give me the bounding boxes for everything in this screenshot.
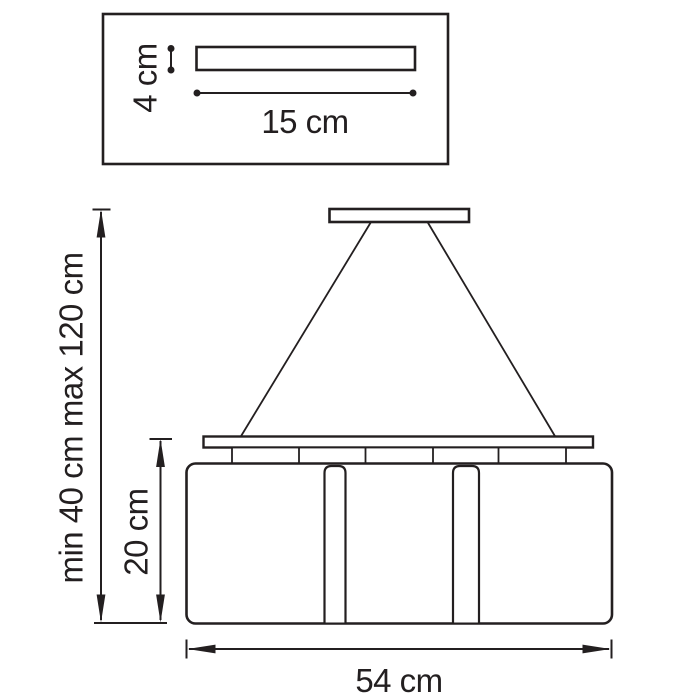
arrow-down — [97, 595, 106, 623]
suspension-height-label: min 40 cm max 120 cm — [53, 252, 90, 583]
mounting-bar — [204, 437, 594, 448]
inner-shade-gap-right — [453, 466, 479, 623]
dim-dot — [194, 90, 201, 97]
dim-dot — [168, 67, 175, 74]
shade-row — [187, 464, 613, 624]
ceiling-plate — [330, 209, 470, 222]
detail-box: 4 cm 15 cm — [103, 14, 448, 164]
inner-shade-gap-left — [325, 466, 346, 623]
shade-height-label: 20 cm — [118, 488, 155, 575]
arrow-up — [156, 439, 165, 467]
dim-dot — [168, 45, 175, 52]
pendant-front-view — [187, 209, 613, 624]
suspension-wire-left — [241, 222, 372, 437]
lamp-holders — [232, 448, 566, 464]
arrow-down — [156, 595, 165, 623]
dim-dot — [410, 90, 417, 97]
holder-row — [232, 448, 566, 464]
suspension-wire-right — [428, 222, 556, 437]
canopy-height-label: 4 cm — [127, 43, 164, 113]
dim-shade-height: 20 cm — [118, 439, 173, 623]
arrow-right — [583, 645, 611, 654]
total-width-label: 54 cm — [355, 662, 442, 699]
canopy-width-label: 15 cm — [261, 103, 348, 140]
arrow-left — [188, 645, 216, 654]
arrow-up — [97, 210, 106, 238]
drawing-canvas: 4 cm 15 cm min — [0, 0, 700, 700]
dim-total-width: 54 cm — [187, 640, 612, 700]
canopy-bar-top-view — [197, 47, 416, 70]
lamp-dimension-drawing: 4 cm 15 cm min — [0, 0, 700, 700]
